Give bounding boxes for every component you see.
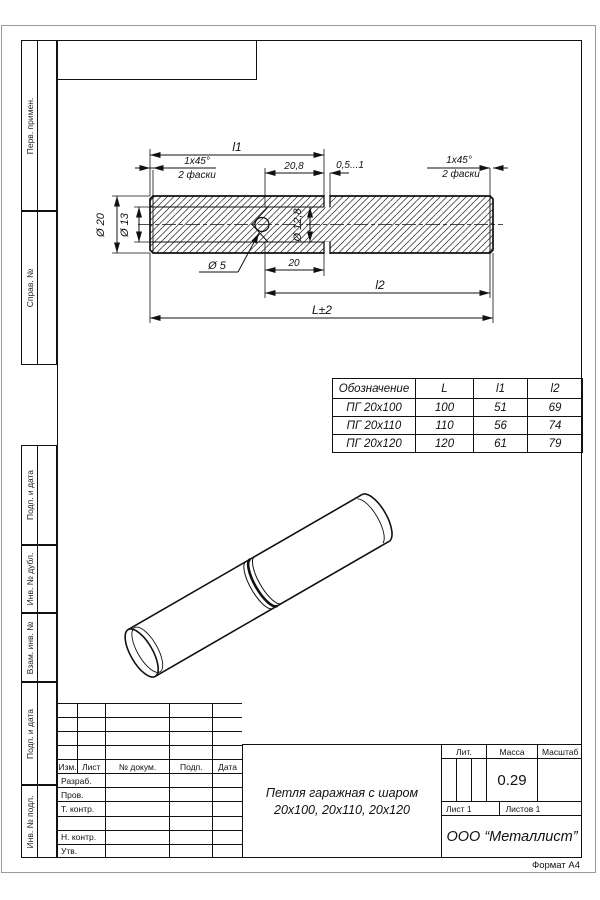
lit-mass-scale-header: Лит. Масса Масштаб <box>442 745 582 759</box>
margin-blank-cell <box>38 786 56 857</box>
role-label: Утв. <box>58 845 106 858</box>
reserve-row <box>58 746 242 760</box>
lit-cell-2 <box>457 759 472 801</box>
mass-label: Масса <box>487 745 539 758</box>
lit-cell-1 <box>442 759 457 801</box>
role-label: Пров. <box>58 788 106 801</box>
col-header: l1 <box>474 379 528 399</box>
scale-label: Масштаб <box>538 745 582 758</box>
margin-label: Инв. № подл. <box>25 795 35 848</box>
rod-outline <box>150 196 493 253</box>
rev-col-list: Лист <box>78 760 106 773</box>
near-end-chamfer <box>126 623 169 677</box>
reserve-row <box>58 732 242 746</box>
dim-d128: Ø 12,8 <box>292 208 304 243</box>
near-end-face <box>119 624 165 682</box>
dim-d5: Ø 5 <box>207 260 227 272</box>
sheet-row: Лист 1 Листов 1 <box>442 802 582 816</box>
dim-l2: l2 <box>375 278 385 292</box>
part-title-line2: 20х100, 20х110, 20х120 <box>274 802 410 819</box>
dim-pin-length: 20 <box>287 258 300 269</box>
role-label <box>58 817 106 830</box>
far-end-face <box>362 489 399 541</box>
dim-d13: Ø 13 <box>119 212 131 238</box>
rev-col-izm: Изм. <box>58 760 78 773</box>
cell: 56 <box>474 417 528 435</box>
lit-label: Лит. <box>442 745 487 758</box>
cell: 100 <box>416 399 474 417</box>
cell: 69 <box>528 399 583 417</box>
cell: ПГ 20x100 <box>333 399 416 417</box>
col-header: Обозначение <box>333 379 416 399</box>
cell: 61 <box>474 435 528 453</box>
company-name: ООО “Металлист” <box>442 816 582 858</box>
title-block-name: Петля гаражная с шаром 20х100, 20х110, 2… <box>242 744 441 858</box>
role-label: Т. контр. <box>58 802 106 815</box>
cell: 74 <box>528 417 583 435</box>
gap-white-top <box>325 195 330 208</box>
signature-row: Т. контр. <box>58 802 242 816</box>
dim-chamfer-left: 1x45° <box>184 156 210 167</box>
scale-value <box>538 759 582 801</box>
cell: 79 <box>528 435 583 453</box>
title-block-right: Лит. Масса Масштаб 0.29 Лист 1 Листов 1 … <box>441 744 582 858</box>
revision-header-row: Изм. Лист № докум. Подп. Дата <box>58 760 242 774</box>
signature-row: Утв. <box>58 845 242 858</box>
size-table: Обозначение L l1 l2 ПГ 20x100 100 51 69 … <box>332 378 583 453</box>
far-end-chamfer <box>358 495 390 543</box>
dim-length: L±2 <box>312 303 332 317</box>
dim-l1: l1 <box>232 140 241 154</box>
dim-chamfer-right: 1x45° <box>446 155 472 166</box>
sheet-number: Лист 1 <box>442 802 500 815</box>
dim-chamfer-left-note: 2 фаски <box>177 169 216 181</box>
rev-col-data: Дата <box>213 760 242 773</box>
dim-bore-depth: 20,8 <box>283 161 304 172</box>
rev-col-podp: Подп. <box>170 760 213 773</box>
table-row: ПГ 20x110 110 56 74 <box>333 417 583 435</box>
margin-label-cell: Инв. № подл. <box>22 786 38 857</box>
cell: ПГ 20x110 <box>333 417 416 435</box>
dim-chamfer-right-note: 2 фаски <box>441 168 480 180</box>
cell: 51 <box>474 399 528 417</box>
reserve-row <box>58 718 242 732</box>
table-row: ПГ 20x120 120 61 79 <box>333 435 583 453</box>
lit-mass-scale-values: 0.29 <box>442 759 582 802</box>
dim-d20: Ø 20 <box>95 212 107 238</box>
col-header: l2 <box>528 379 583 399</box>
lit-cell-3 <box>472 759 487 801</box>
part-title-line1: Петля гаражная с шаром <box>266 785 418 802</box>
drawing-sheet: Перв. примен. Справ. № Подп. и дата Инв.… <box>0 0 600 900</box>
isometric-view <box>119 489 399 682</box>
signature-row <box>58 817 242 831</box>
cell: ПГ 20x120 <box>333 435 416 453</box>
dim-gap: 0,5...1 <box>336 160 364 171</box>
cell: 120 <box>416 435 474 453</box>
role-label: Разраб. <box>58 774 106 787</box>
reserve-row <box>58 704 242 718</box>
signature-row: Н. контр. <box>58 831 242 845</box>
table-row: ПГ 20x100 100 51 69 <box>333 399 583 417</box>
signature-row: Пров. <box>58 788 242 802</box>
joint-line-2 <box>242 559 277 610</box>
rod-section-view <box>138 195 503 255</box>
margin-box-inv-podl: Инв. № подл. <box>21 785 57 858</box>
mass-value: 0.29 <box>487 759 539 801</box>
cell: 110 <box>416 417 474 435</box>
col-header: L <box>416 379 474 399</box>
size-table-header-row: Обозначение L l1 l2 <box>333 379 583 399</box>
rev-col-docnum: № докум. <box>106 760 171 773</box>
title-block-left: Изм. Лист № докум. Подп. Дата Разраб. Пр… <box>57 703 242 858</box>
margin-label: Подп. и дата <box>25 708 35 758</box>
gap-white-bottom <box>325 242 330 255</box>
main-drawing: l1 1x45° 2 фаски 1x45° 2 фаски 20,8 0,5.… <box>0 0 600 700</box>
signature-row: Разраб. <box>58 774 242 788</box>
format-label: Формат А4 <box>500 860 580 871</box>
role-label: Н. контр. <box>58 831 106 844</box>
sheets-total: Листов 1 <box>500 802 582 815</box>
company-row: ООО “Металлист” <box>442 816 582 858</box>
